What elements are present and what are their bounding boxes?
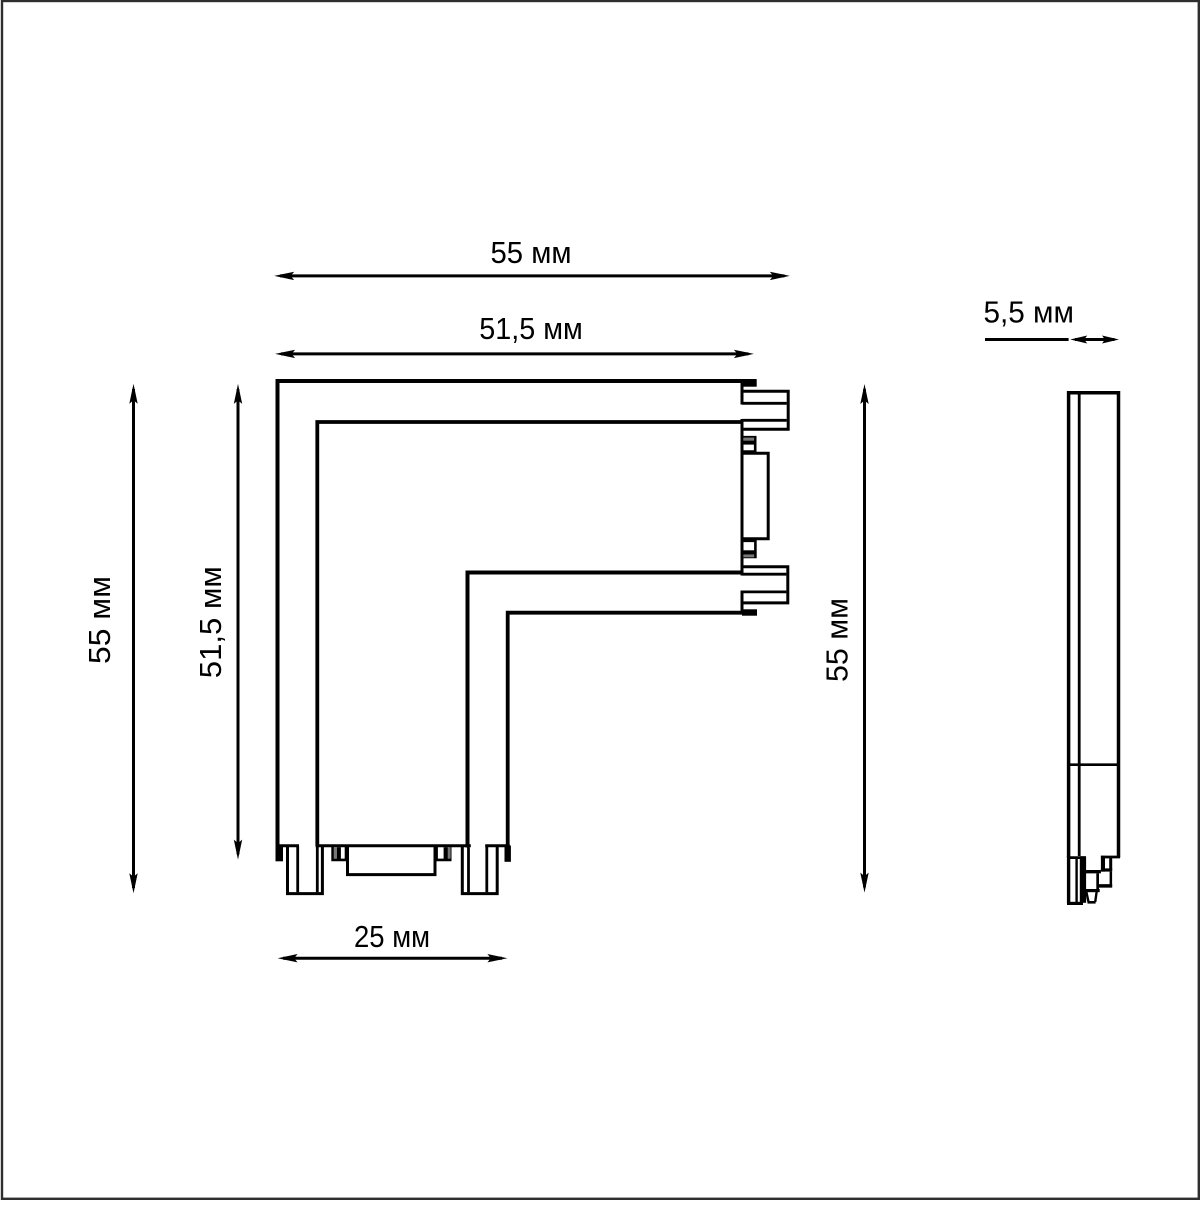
svg-text:25 мм: 25 мм bbox=[354, 920, 430, 954]
svg-text:55 мм: 55 мм bbox=[83, 576, 117, 664]
svg-text:51,5 мм: 51,5 мм bbox=[479, 312, 583, 346]
svg-text:51,5 мм: 51,5 мм bbox=[194, 566, 228, 678]
svg-text:55 мм: 55 мм bbox=[491, 236, 572, 270]
svg-text:5,5 мм: 5,5 мм bbox=[983, 296, 1074, 330]
svg-text:55 мм: 55 мм bbox=[821, 598, 855, 682]
